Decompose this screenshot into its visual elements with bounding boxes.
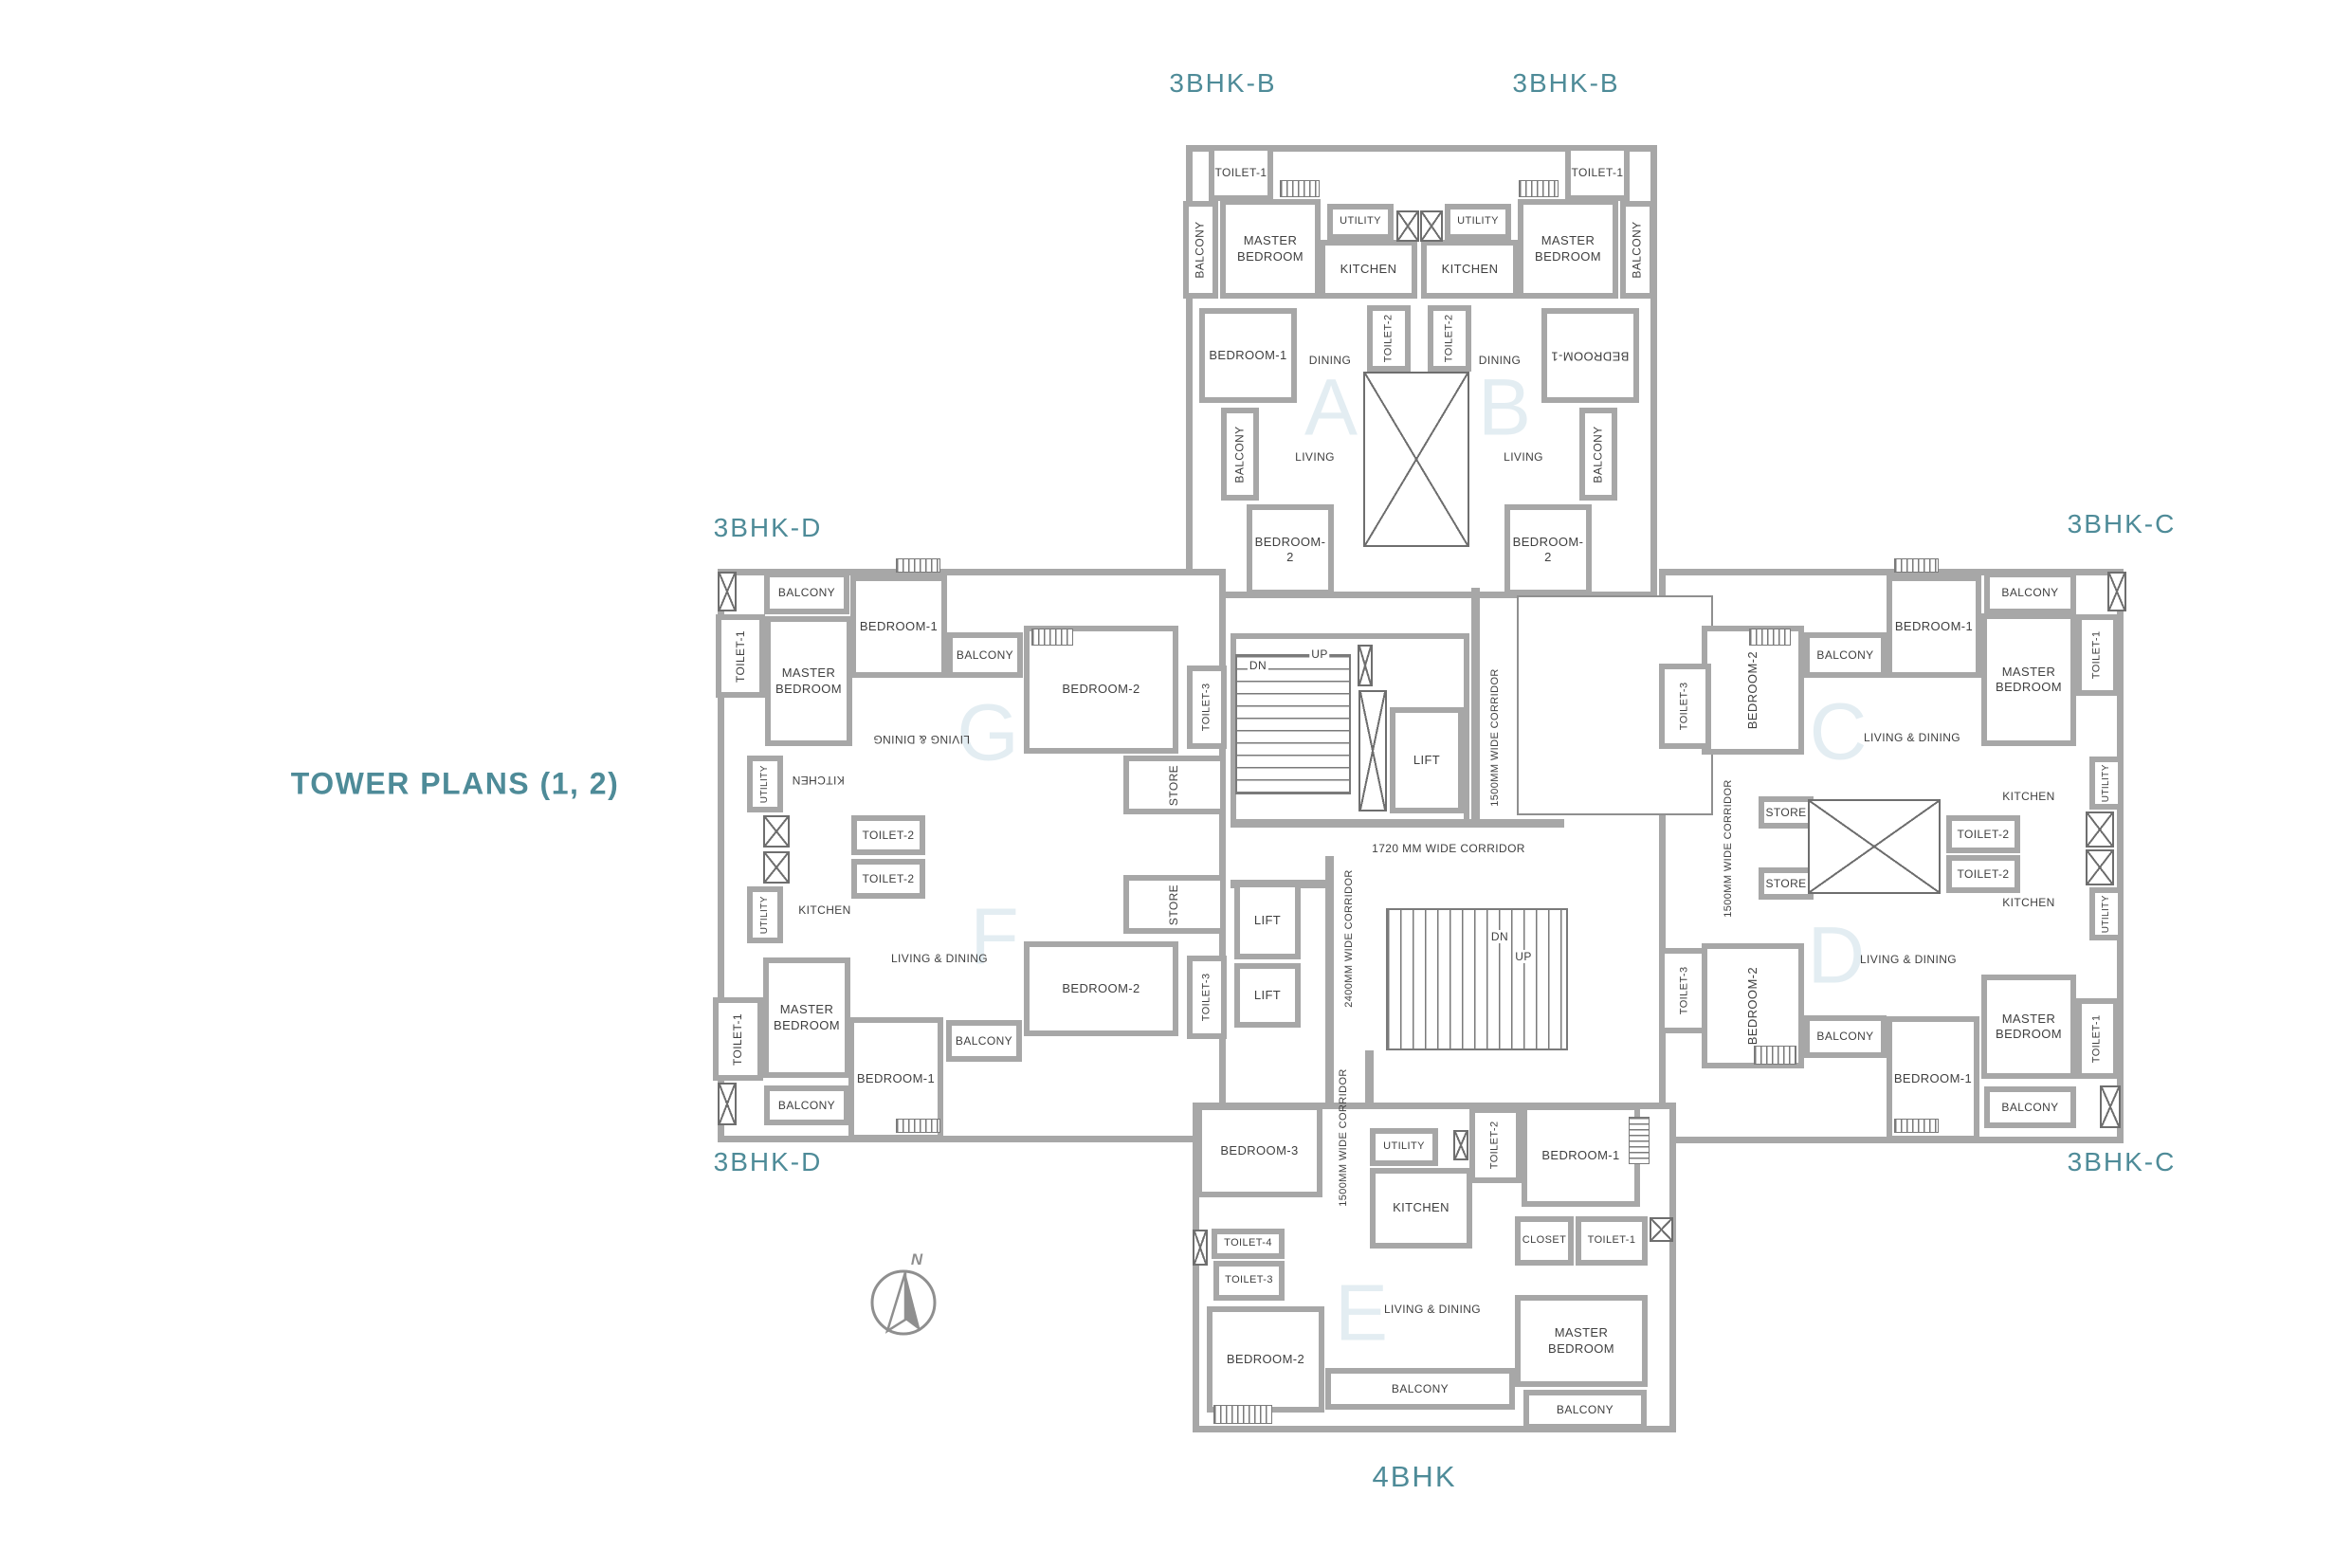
room-label: TOILET-3 [1225,1274,1273,1287]
unit-letter-e: E [1335,1267,1390,1359]
room-label: CLOSET [1522,1234,1566,1248]
unit-type-label-3bhk-d: 3BHK-D [714,1147,823,1177]
room-utility: UTILITY [1370,1128,1438,1166]
unit-letter-d: D [1808,910,1868,1002]
shaft-x-icon [2107,572,2126,611]
room-label: TOILET-2 [1443,315,1456,363]
room-label: TOILET-3 [1200,974,1213,1022]
room-balcony: BALCONY [1523,1390,1647,1430]
unit-letter-f: F [970,891,1020,983]
room-balcony: BALCONY [1804,632,1887,678]
room-label: BEDROOM-1 [1894,1071,1972,1086]
room-bedroom-1: BEDROOM-1 [1199,308,1297,403]
room-bedroom-1: BEDROOM-1 [1522,1104,1640,1207]
staircase [1386,908,1568,1050]
room-label: MASTER BEDROOM [1987,1012,2070,1043]
room-store: STORE [1759,796,1814,829]
room-label: MASTER BEDROOM [1987,665,2070,696]
room-bedroom-1: BEDROOM-1 [1887,575,1981,678]
room-label: TOILET-3 [1200,684,1213,732]
room-label: BALCONY [2001,586,2058,600]
room-balcony: BALCONY [1620,201,1655,299]
room-label: UTILITY [759,765,772,803]
room-label: TOILET-2 [1958,867,2010,882]
room-toilet-1: TOILET-1 [2076,998,2119,1079]
room-label: BEDROOM-2 [1745,651,1760,729]
room-label: BALCONY [1592,426,1606,483]
wall [1325,856,1334,1104]
hatch-strip [1749,629,1791,646]
room-label: BEDROOM-2 [1252,535,1328,566]
room-toilet-1: TOILET-1 [2076,614,2119,696]
north-arrow-icon [905,1272,921,1331]
room-label: BALCONY [1233,426,1248,483]
room-label: STORE [1765,806,1806,820]
room-label: MASTER BEDROOM [1226,233,1315,264]
label-living: LIVING [1295,450,1335,464]
room-toilet-1: TOILET-1 [1209,145,1273,201]
hatch-strip [896,558,940,573]
label-kitchen: KITCHEN [792,774,844,787]
room-utility: UTILITY [1445,204,1511,240]
label-living-dining: LIVING & DINING [1860,953,1957,966]
room-label: TOILET-1 [1572,166,1624,180]
room-utility: UTILITY [1327,204,1394,240]
room-balcony: BALCONY [764,572,849,614]
shaft-x-icon [1358,690,1387,811]
room-label: BEDROOM-2 [1062,682,1140,697]
unit-letter-a: A [1304,362,1359,454]
shaft-x-icon [1420,210,1443,242]
room-label: TOILET-2 [863,872,915,886]
room-label: BALCONY [2001,1101,2058,1115]
compass-north-label: N [911,1250,923,1268]
room-label: BALCONY [957,648,1013,663]
room-balcony: BALCONY [1183,201,1218,299]
room-label: BEDROOM-2 [1745,967,1760,1045]
room-label: UTILITY [2101,895,2113,933]
room-closet: CLOSET [1515,1216,1574,1266]
room-bedroom-1: BEDROOM-1 [850,575,947,678]
label-living-dining: LIVING & DINING [1384,1303,1481,1316]
shaft-x-icon [1363,372,1469,547]
room-master-bedroom: MASTER BEDROOM [1220,199,1321,299]
room-label: BEDROOM-2 [1510,535,1586,566]
room-bedroom-2: BEDROOM-2 [1024,941,1178,1036]
staircase [1235,654,1351,794]
room-label: BEDROOM-1 [857,1071,935,1086]
room-balcony: BALCONY [1804,1015,1887,1058]
room-toilet-3: TOILET-3 [1213,1261,1285,1301]
room-label: BALCONY [778,1099,835,1113]
room-label: KITCHEN [1340,262,1397,277]
room-master-bedroom: MASTER BEDROOM [1518,199,1618,299]
room-label: BALCONY [1194,221,1208,278]
room-label: TOILET-2 [1382,315,1395,363]
room-toilet-2: TOILET-2 [851,859,925,899]
room-bedroom-2: BEDROOM-2 [1207,1306,1324,1413]
unit-type-label-3bhk-c: 3BHK-C [2068,1147,2177,1177]
shaft-x-icon [2086,811,2114,848]
room-label: UTILITY [1340,215,1381,228]
label-dining: DINING [1479,354,1521,367]
label-living-dining: LIVING & DINING [873,733,970,746]
wall [1365,1050,1374,1104]
room-kitchen: KITCHEN [1370,1168,1472,1249]
unit-type-label-3bhk-c: 3BHK-C [2068,509,2177,539]
shaft-x-icon [1808,799,1941,894]
room-master-bedroom: MASTER BEDROOM [765,616,852,746]
unit-letter-c: C [1810,686,1869,778]
room-toilet-1: TOILET-1 [1576,1216,1648,1266]
room-label: UTILITY [2101,764,2113,802]
room-label: BEDROOM-1 [860,619,938,634]
room-label: BEDROOM-1 [1541,1148,1619,1163]
hatch-strip [1031,629,1073,646]
room-utility: UTILITY [747,756,783,812]
room-master-bedroom: MASTER BEDROOM [1515,1295,1648,1387]
shaft-x-icon [1453,1130,1468,1160]
room-label: STORE [1168,764,1182,805]
room-toilet-1: TOILET-1 [716,614,765,698]
hatch-strip [896,1119,940,1133]
room-label: STORE [1168,884,1182,924]
room-label: UTILITY [759,896,772,934]
room-utility: UTILITY [2089,757,2124,810]
room-utility: UTILITY [747,886,783,943]
room-toilet-2: TOILET-2 [1946,855,2020,893]
shaft-x-icon [1650,1217,1673,1242]
label-kitchen: KITCHEN [798,903,850,917]
room-balcony: BALCONY [1325,1368,1515,1410]
room-label: MASTER BEDROOM [771,665,847,697]
room-balcony: BALCONY [1984,572,2076,614]
room-label: TOILET-4 [1224,1237,1272,1250]
room-toilet-1: TOILET-1 [1565,145,1630,201]
shaft-x-icon [718,572,737,611]
label-dn: DN [1489,930,1510,943]
room-label: TOILET-1 [2091,631,2105,680]
shaft-x-icon [2086,849,2114,885]
room-label: BEDROOM-2 [1227,1352,1304,1367]
room-bedroom-2: BEDROOM-2 [1504,504,1592,595]
room-label: BALCONY [1816,648,1873,663]
room-balcony: BALCONY [1221,408,1259,501]
room-store: STORE [1123,875,1226,934]
room-label: BALCONY [778,586,835,600]
room-label: TOILET-1 [734,630,748,683]
room-balcony: BALCONY [1579,408,1617,501]
room-toilet-2: TOILET-2 [1946,815,2020,853]
label-1500mm-wide-corridor: 1500MM WIDE CORRIDOR [1723,779,1734,918]
room-label: KITCHEN [1442,262,1499,277]
room-label: BEDROOM-1 [1209,348,1286,363]
room-label: MASTER BEDROOM [1523,233,1613,264]
room-label: TOILET-1 [2091,1014,2105,1063]
shaft-x-icon [1193,1230,1208,1266]
label-up: UP [1309,647,1329,661]
label-living-dining: LIVING & DINING [891,952,988,965]
label-1720-mm-wide-corridor: 1720 MM WIDE CORRIDOR [1372,842,1525,855]
room-label: BALCONY [1392,1382,1449,1396]
compass: N [860,1248,947,1346]
label-dining: DINING [1309,354,1351,367]
room-label: TOILET-1 [1588,1234,1636,1248]
shaft-x-icon [718,1083,737,1125]
room-label: LIFT [1413,753,1440,768]
room-toilet-2: TOILET-2 [1428,305,1471,372]
room-toilet-3: TOILET-3 [1187,665,1227,749]
page-title: TOWER PLANS (1, 2) [291,767,619,802]
room-bedroom-2: BEDROOM-2 [1247,504,1334,595]
room-label: TOILET-2 [863,829,915,843]
room-utility: UTILITY [2089,887,2124,940]
room-label: BEDROOM-1 [1895,619,1973,634]
unit-letter-b: B [1478,362,1533,454]
label-kitchen: KITCHEN [2002,896,2054,909]
shaft-x-icon [763,815,790,848]
room-label: BALCONY [1557,1403,1614,1417]
label-2400mm-wide-corridor: 2400MM WIDE CORRIDOR [1343,869,1355,1008]
room-master-bedroom: MASTER BEDROOM [763,957,850,1078]
room-toilet-3: TOILET-3 [1187,956,1227,1039]
label-living: LIVING [1504,450,1543,464]
hatch-strip [1894,558,1939,573]
label-dn: DN [1248,659,1268,672]
unit-type-label-3bhk-b: 3BHK-B [1512,68,1619,99]
room-label: STORE [1765,877,1806,891]
room-toilet-2: TOILET-2 [1469,1107,1522,1183]
room-label: UTILITY [1383,1140,1425,1154]
room-label: MASTER BEDROOM [769,1002,845,1033]
room-label: BEDROOM-2 [1062,981,1140,996]
room-balcony: BALCONY [1984,1086,2076,1128]
shaft-x-icon [763,851,790,884]
hatch-strip [1754,1046,1796,1065]
hatch-strip [1519,180,1559,197]
room-toilet-4: TOILET-4 [1212,1229,1285,1259]
hatch-strip [1894,1119,1939,1133]
label-living-dining: LIVING & DINING [1864,731,1960,744]
room-label: BEDROOM-1 [1551,348,1629,363]
room-balcony: BALCONY [946,1020,1022,1062]
shaft-x-icon [1396,210,1419,242]
room-toilet-1: TOILET-1 [713,997,763,1081]
room-label: KITCHEN [1393,1200,1449,1215]
room-label: BALCONY [1816,1030,1873,1044]
room-toilet-3: TOILET-3 [1659,664,1711,749]
hatch-strip [1280,180,1320,197]
room-label: TOILET-3 [1679,967,1692,1015]
room-label: MASTER BEDROOM [1521,1325,1642,1357]
tower-floor-plan: TOWER PLANS (1, 2) N TOILET-1BALCONYMAST… [0,0,2352,1568]
room-toilet-2: TOILET-2 [1367,305,1411,372]
room-label: TOILET-2 [1489,1121,1503,1170]
room-label: BALCONY [1631,221,1645,278]
wall [1471,588,1480,823]
hatch-strip [1213,1405,1272,1424]
north-arrow-outline [887,1272,905,1331]
label-1500mm-wide-corridor: 1500MM WIDE CORRIDOR [1489,668,1501,807]
unit-type-label-3bhk-d: 3BHK-D [714,513,823,543]
unit-type-label-3bhk-b: 3BHK-B [1169,68,1276,99]
room-lift: LIFT [1234,882,1301,959]
room-bedroom-3: BEDROOM-3 [1196,1104,1322,1197]
room-label: UTILITY [1457,215,1499,228]
label-up: UP [1513,950,1533,963]
room-label: TOILET-1 [731,1013,745,1066]
room-label: BALCONY [956,1034,1012,1048]
room-balcony: BALCONY [764,1085,849,1125]
room-label: LIFT [1254,988,1281,1003]
label-kitchen: KITCHEN [2002,790,2054,803]
room-label: TOILET-3 [1679,683,1692,731]
room-store: STORE [1759,867,1814,900]
hatch-strip [1629,1117,1650,1164]
room-label: BEDROOM-3 [1220,1143,1298,1158]
room-kitchen: KITCHEN [1421,240,1519,299]
room-label: TOILET-2 [1958,828,2010,842]
room-store: STORE [1123,756,1226,814]
shaft-x-icon [2100,1085,2121,1128]
room-label: TOILET-1 [1215,166,1267,180]
room-toilet-2: TOILET-2 [851,815,925,855]
room-lift: LIFT [1234,963,1301,1028]
label-1500mm-wide-corridor: 1500MM WIDE CORRIDOR [1338,1068,1349,1207]
unit-type-label-4bhk: 4BHK [1373,1460,1457,1494]
room-balcony: BALCONY [947,632,1023,678]
shaft-x-icon [1358,645,1373,686]
room-master-bedroom: MASTER BEDROOM [1981,975,2076,1079]
room-kitchen: KITCHEN [1320,240,1417,299]
room-lift: LIFT [1390,707,1464,813]
room-bedroom-1: BEDROOM-1 [1541,308,1639,403]
room-label: LIFT [1254,913,1281,928]
room-master-bedroom: MASTER BEDROOM [1981,613,2076,746]
